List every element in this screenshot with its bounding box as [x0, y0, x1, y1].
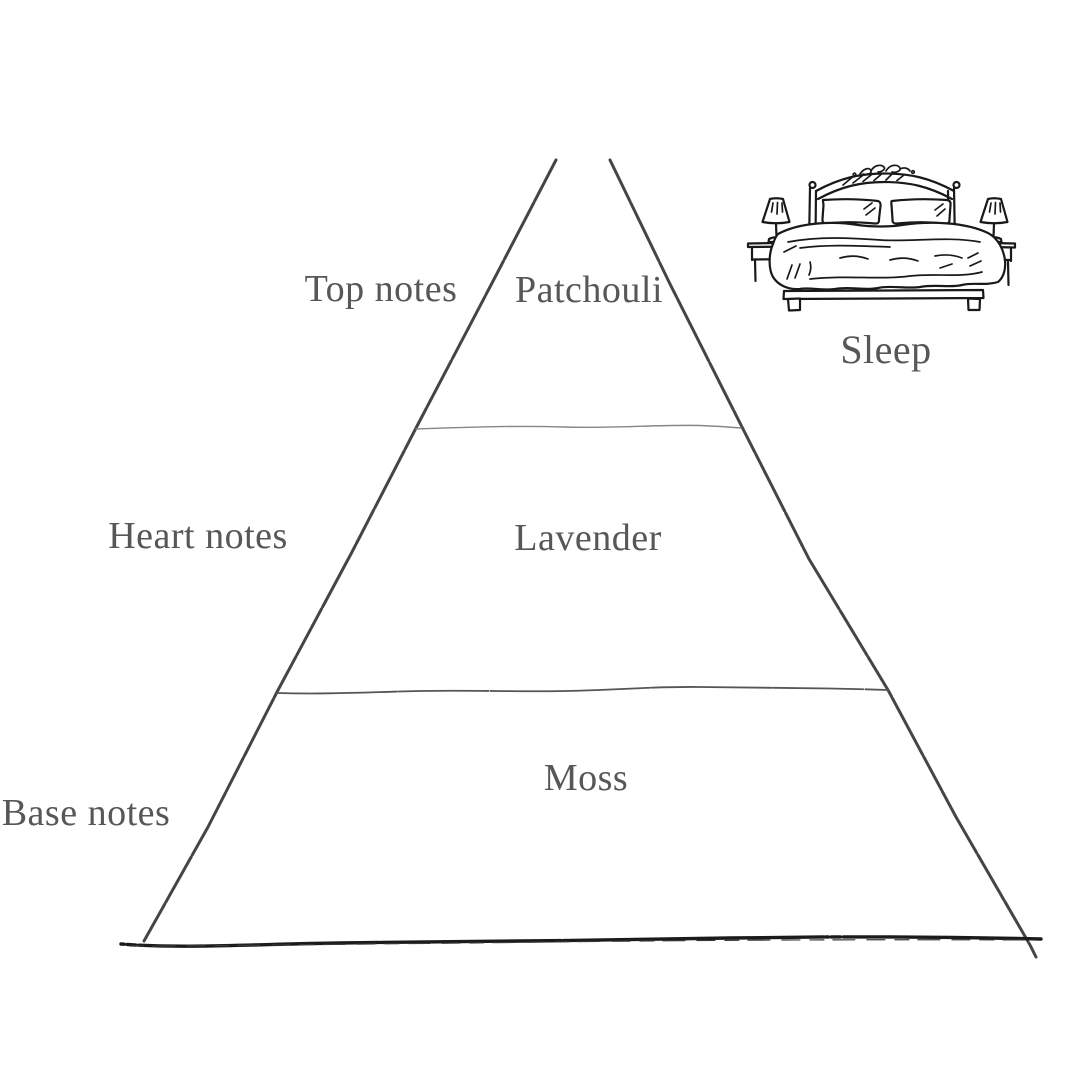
top-heart-divider: [416, 425, 741, 429]
bed-icon: [740, 158, 1032, 318]
base-notes-label: Base notes: [2, 794, 171, 832]
base-note-value: Moss: [544, 759, 628, 797]
heart-notes-label: Heart notes: [108, 517, 288, 555]
heart-note-value: Lavender: [514, 519, 661, 557]
top-notes-label: Top notes: [305, 270, 458, 308]
heart-base-divider: [277, 687, 888, 694]
top-note-value: Patchouli: [515, 271, 663, 309]
scene-label: Sleep: [840, 330, 931, 370]
fragrance-pyramid-diagram: Top notes Heart notes Base notes Patchou…: [0, 0, 1080, 1080]
